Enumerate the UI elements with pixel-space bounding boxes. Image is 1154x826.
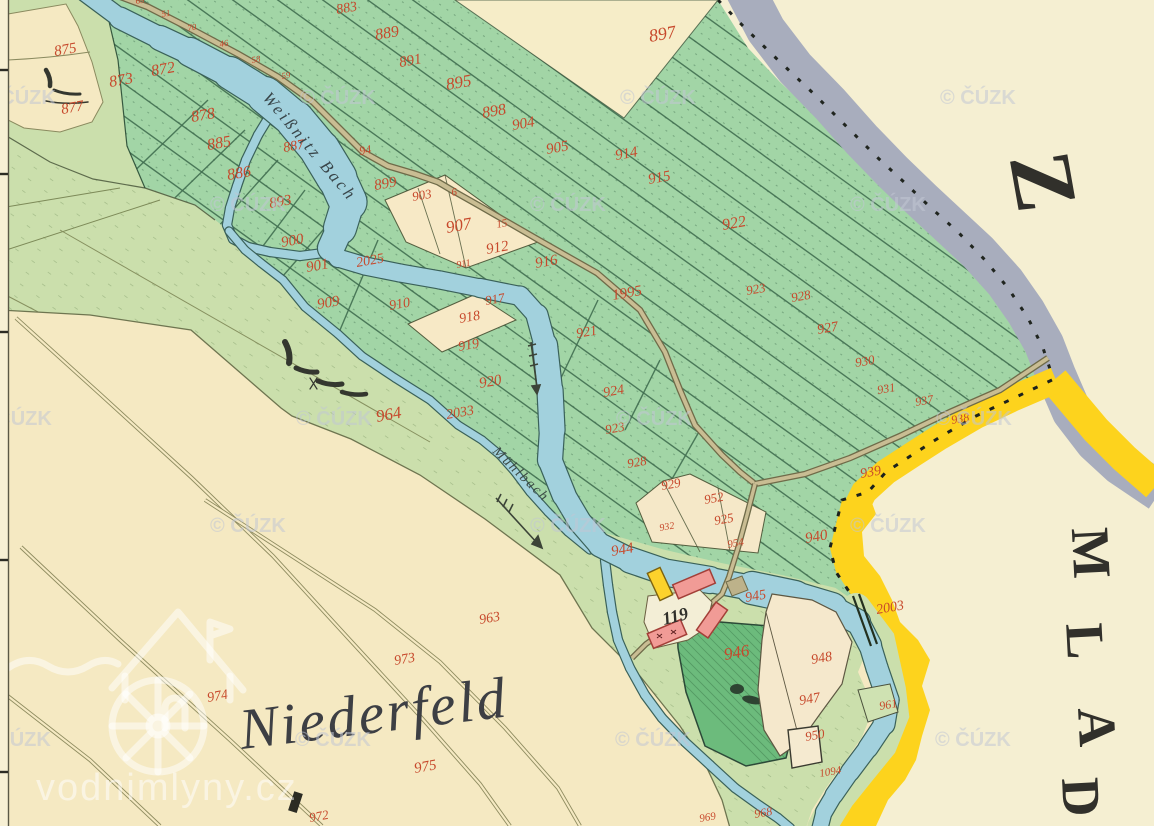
svg-text:© ČÚZK: © ČÚZK: [940, 85, 1016, 109]
svg-text:© ČÚZK: © ČÚZK: [296, 406, 372, 430]
svg-text:© ČÚZK: © ČÚZK: [616, 406, 692, 430]
svg-text:© ČÚZK: © ČÚZK: [850, 513, 926, 537]
svg-text:© ČÚZK: © ČÚZK: [295, 727, 371, 751]
svg-text:L: L: [1054, 621, 1116, 660]
svg-text:A: A: [1066, 706, 1128, 748]
svg-text:© ČÚZK: © ČÚZK: [620, 85, 696, 109]
svg-text:© ČÚZK: © ČÚZK: [530, 513, 606, 537]
svg-text:© ČÚZK: © ČÚZK: [300, 85, 376, 109]
svg-text:94: 94: [358, 142, 372, 158]
svg-text:51: 51: [161, 8, 172, 19]
svg-text:© ČÚZK: © ČÚZK: [210, 192, 286, 216]
svg-text:© ČÚZK: © ČÚZK: [935, 727, 1011, 751]
svg-text:© ČÚZK: © ČÚZK: [615, 727, 691, 751]
svg-text:© ČÚZK: © ČÚZK: [936, 406, 1012, 430]
svg-text:D: D: [1050, 776, 1112, 818]
svg-text:M: M: [1060, 526, 1123, 580]
svg-text:© ČÚZK: © ČÚZK: [530, 192, 606, 216]
svg-text:vodnimlyny.cz: vodnimlyny.cz: [36, 767, 298, 809]
svg-text:© ČÚZK: © ČÚZK: [850, 192, 926, 216]
svg-text:© ČÚZK: © ČÚZK: [210, 513, 286, 537]
